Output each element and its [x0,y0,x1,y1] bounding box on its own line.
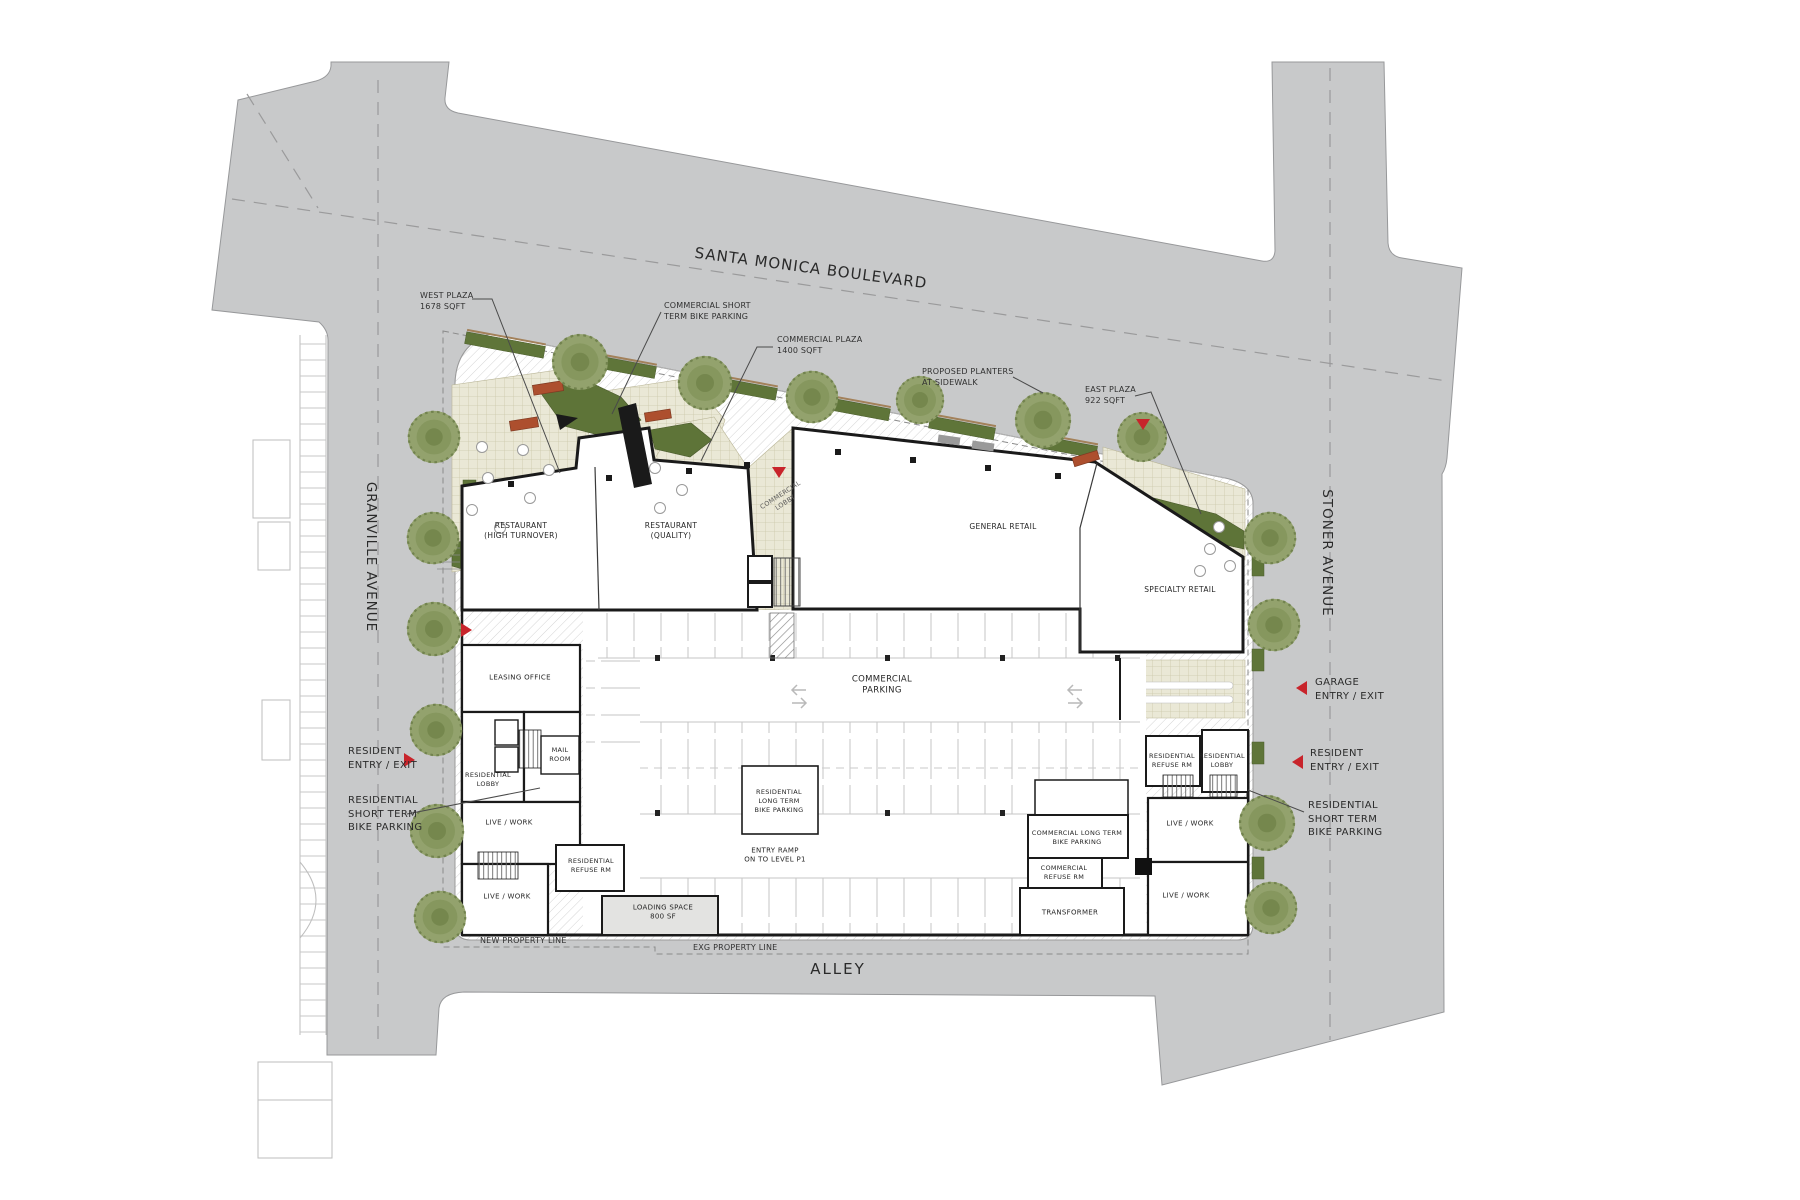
residential-lobby-right-label: RESIDENTIAL LOBBY [1199,752,1245,770]
commercial-refuse-label: COMMERCIAL REFUSE RM [1041,864,1088,882]
site-plan: SANTA MONICA BOULEVARD GRANVILLE AVENUE … [0,0,1800,1200]
east-plaza-callout: EAST PLAZA 922 SQFT [1085,385,1136,406]
live-work-right-lower-label: LIVE / WORK [1162,891,1209,900]
live-work-right-upper-room [1148,798,1248,862]
residential-bike-left-label: RESIDENTIAL SHORT TERM BIKE PARKING [348,794,423,835]
residential-refuse-right-label: RESIDENTIAL REFUSE RM [1149,752,1195,770]
street-name-granville: GRANVILLE AVENUE [363,482,379,632]
tree-icon [1248,599,1300,651]
restaurant-quality-label: RESTAURANT (QUALITY) [645,521,698,541]
tree-icon [1245,882,1297,934]
residential-bike-room-label: RESIDENTIAL LONG TERM BIKE PARKING [755,788,804,814]
commercial-plaza-callout: COMMERCIAL PLAZA 1400 SQFT [777,335,862,356]
loading-space-label: LOADING SPACE 800 SF [633,904,693,923]
adjacent-buildings-west [253,335,332,1158]
residential-refuse-left-label: RESIDENTIAL REFUSE RM [568,857,614,875]
residential-bike-right-label: RESIDENTIAL SHORT TERM BIKE PARKING [1308,799,1383,840]
residential-lobby-left-label: RESIDENTIAL LOBBY [465,771,511,789]
tree-icon [407,602,461,656]
resident-entry-left-label: RESIDENT ENTRY / EXIT [348,745,417,772]
commercial-bike-callout: COMMERCIAL SHORT TERM BIKE PARKING [664,301,751,322]
proposed-planters-callout: PROPOSED PLANTERS AT SIDEWALK [922,367,1014,388]
site-plan-drawing [0,0,1800,1200]
mail-room-label: MAIL ROOM [549,746,571,764]
tree-icon [1244,512,1296,564]
street-name-alley: ALLEY [810,960,866,978]
entry-ramp-label: ENTRY RAMP ON TO LEVEL P1 [744,847,806,866]
general-retail-label: GENERAL RETAIL [969,522,1036,532]
west-plaza-callout: WEST PLAZA 1678 SQFT [420,291,473,312]
garage-entry-label: GARAGE ENTRY / EXIT [1315,676,1384,703]
street-name-stoner: STONER AVENUE [1319,489,1335,616]
live-work-right-upper-label: LIVE / WORK [1166,819,1213,828]
tree-icon [407,512,459,564]
leasing-office-label: LEASING OFFICE [489,673,551,682]
commercial-bike-room-label: COMMERCIAL LONG TERM BIKE PARKING [1032,829,1122,847]
tree-icon [410,704,462,756]
exg-property-line-label: EXG PROPERTY LINE [693,943,777,954]
live-work-left-upper-label: LIVE / WORK [485,818,532,827]
resident-entry-right-label: RESIDENT ENTRY / EXIT [1310,747,1379,774]
tree-icon [414,891,466,943]
specialty-retail-label: SPECIALTY RETAIL [1144,585,1216,595]
transformer-label: TRANSFORMER [1042,908,1098,917]
new-property-line-label: NEW PROPERTY LINE [480,936,567,947]
ramp-hatch [770,613,794,658]
restaurant-high-turnover-label: RESTAURANT (HIGH TURNOVER) [484,521,558,541]
tree-icon [1239,795,1295,851]
tree-icon [552,334,608,390]
commercial-parking-label: COMMERCIAL PARKING [852,675,912,698]
live-work-left-lower-label: LIVE / WORK [483,892,530,901]
tree-icon [1015,392,1071,448]
tree-icon [786,371,838,423]
tree-icon [678,356,732,410]
tree-icon [408,411,460,463]
